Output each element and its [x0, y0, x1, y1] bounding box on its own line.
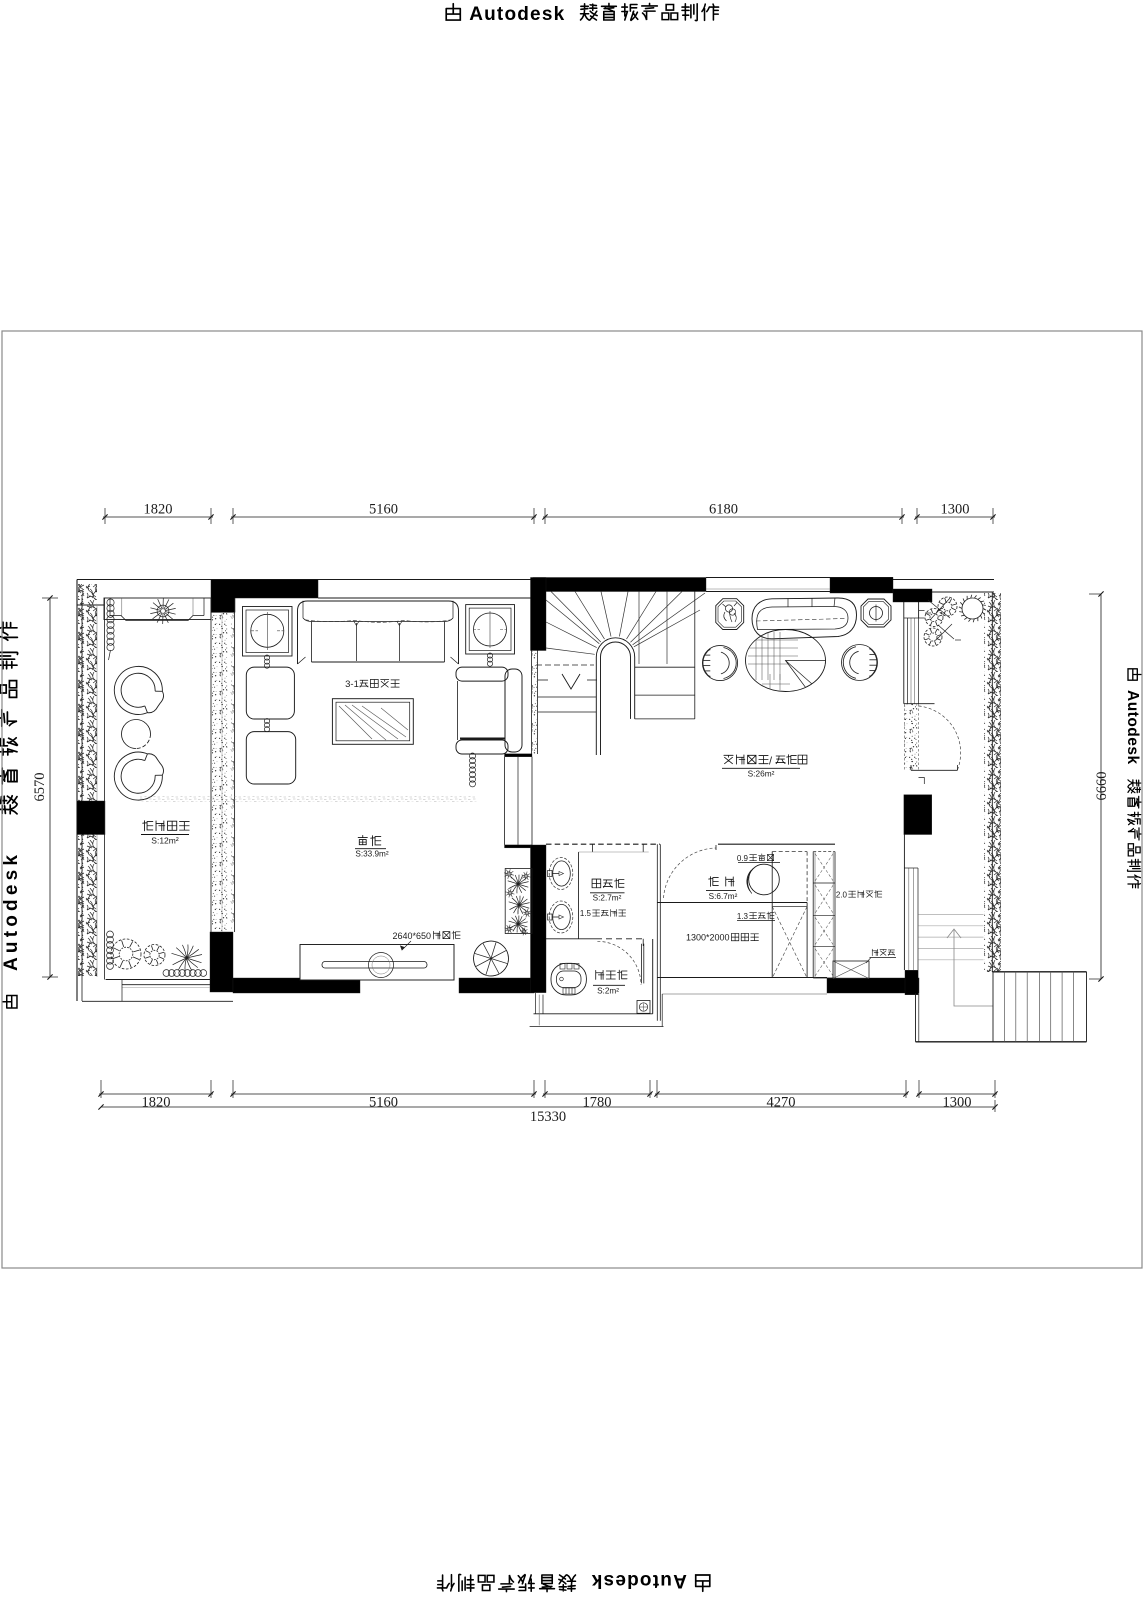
svg-text:2640*650: 2640*650: [392, 931, 431, 941]
svg-text:6660: 6660: [1094, 772, 1110, 801]
svg-text:S:33.9m²: S:33.9m²: [355, 850, 388, 859]
svg-text:Autodesk: Autodesk: [1124, 690, 1141, 765]
svg-text:1300: 1300: [943, 1095, 972, 1111]
svg-text:S:12m²: S:12m²: [151, 836, 179, 846]
svg-text:S:26m²: S:26m²: [748, 769, 775, 779]
svg-text:1820: 1820: [144, 502, 173, 518]
svg-text:1300: 1300: [941, 502, 970, 518]
svg-text:1300*2000: 1300*2000: [686, 933, 730, 943]
svg-text:5160: 5160: [369, 502, 398, 518]
svg-text:1820: 1820: [142, 1095, 171, 1111]
svg-text:4270: 4270: [767, 1095, 796, 1111]
svg-text:3-1: 3-1: [345, 679, 359, 690]
svg-text:Autodesk: Autodesk: [469, 4, 565, 25]
svg-text:S:2.7m²: S:2.7m²: [593, 894, 622, 903]
svg-text:6180: 6180: [709, 502, 738, 518]
svg-text:2.0: 2.0: [836, 891, 848, 900]
svg-text:15330: 15330: [530, 1109, 566, 1125]
svg-text:S:2m²: S:2m²: [597, 987, 619, 996]
svg-text:1780: 1780: [583, 1095, 612, 1111]
svg-text:Autodesk: Autodesk: [1, 851, 22, 971]
svg-text:1.5: 1.5: [580, 909, 592, 918]
svg-text:6570: 6570: [32, 773, 48, 802]
svg-text:1.3: 1.3: [737, 912, 749, 921]
svg-text:S:6.7m²: S:6.7m²: [709, 892, 738, 901]
svg-text:0.9: 0.9: [737, 854, 749, 863]
svg-text:5160: 5160: [369, 1095, 398, 1111]
svg-text:Autodesk: Autodesk: [591, 1570, 687, 1591]
